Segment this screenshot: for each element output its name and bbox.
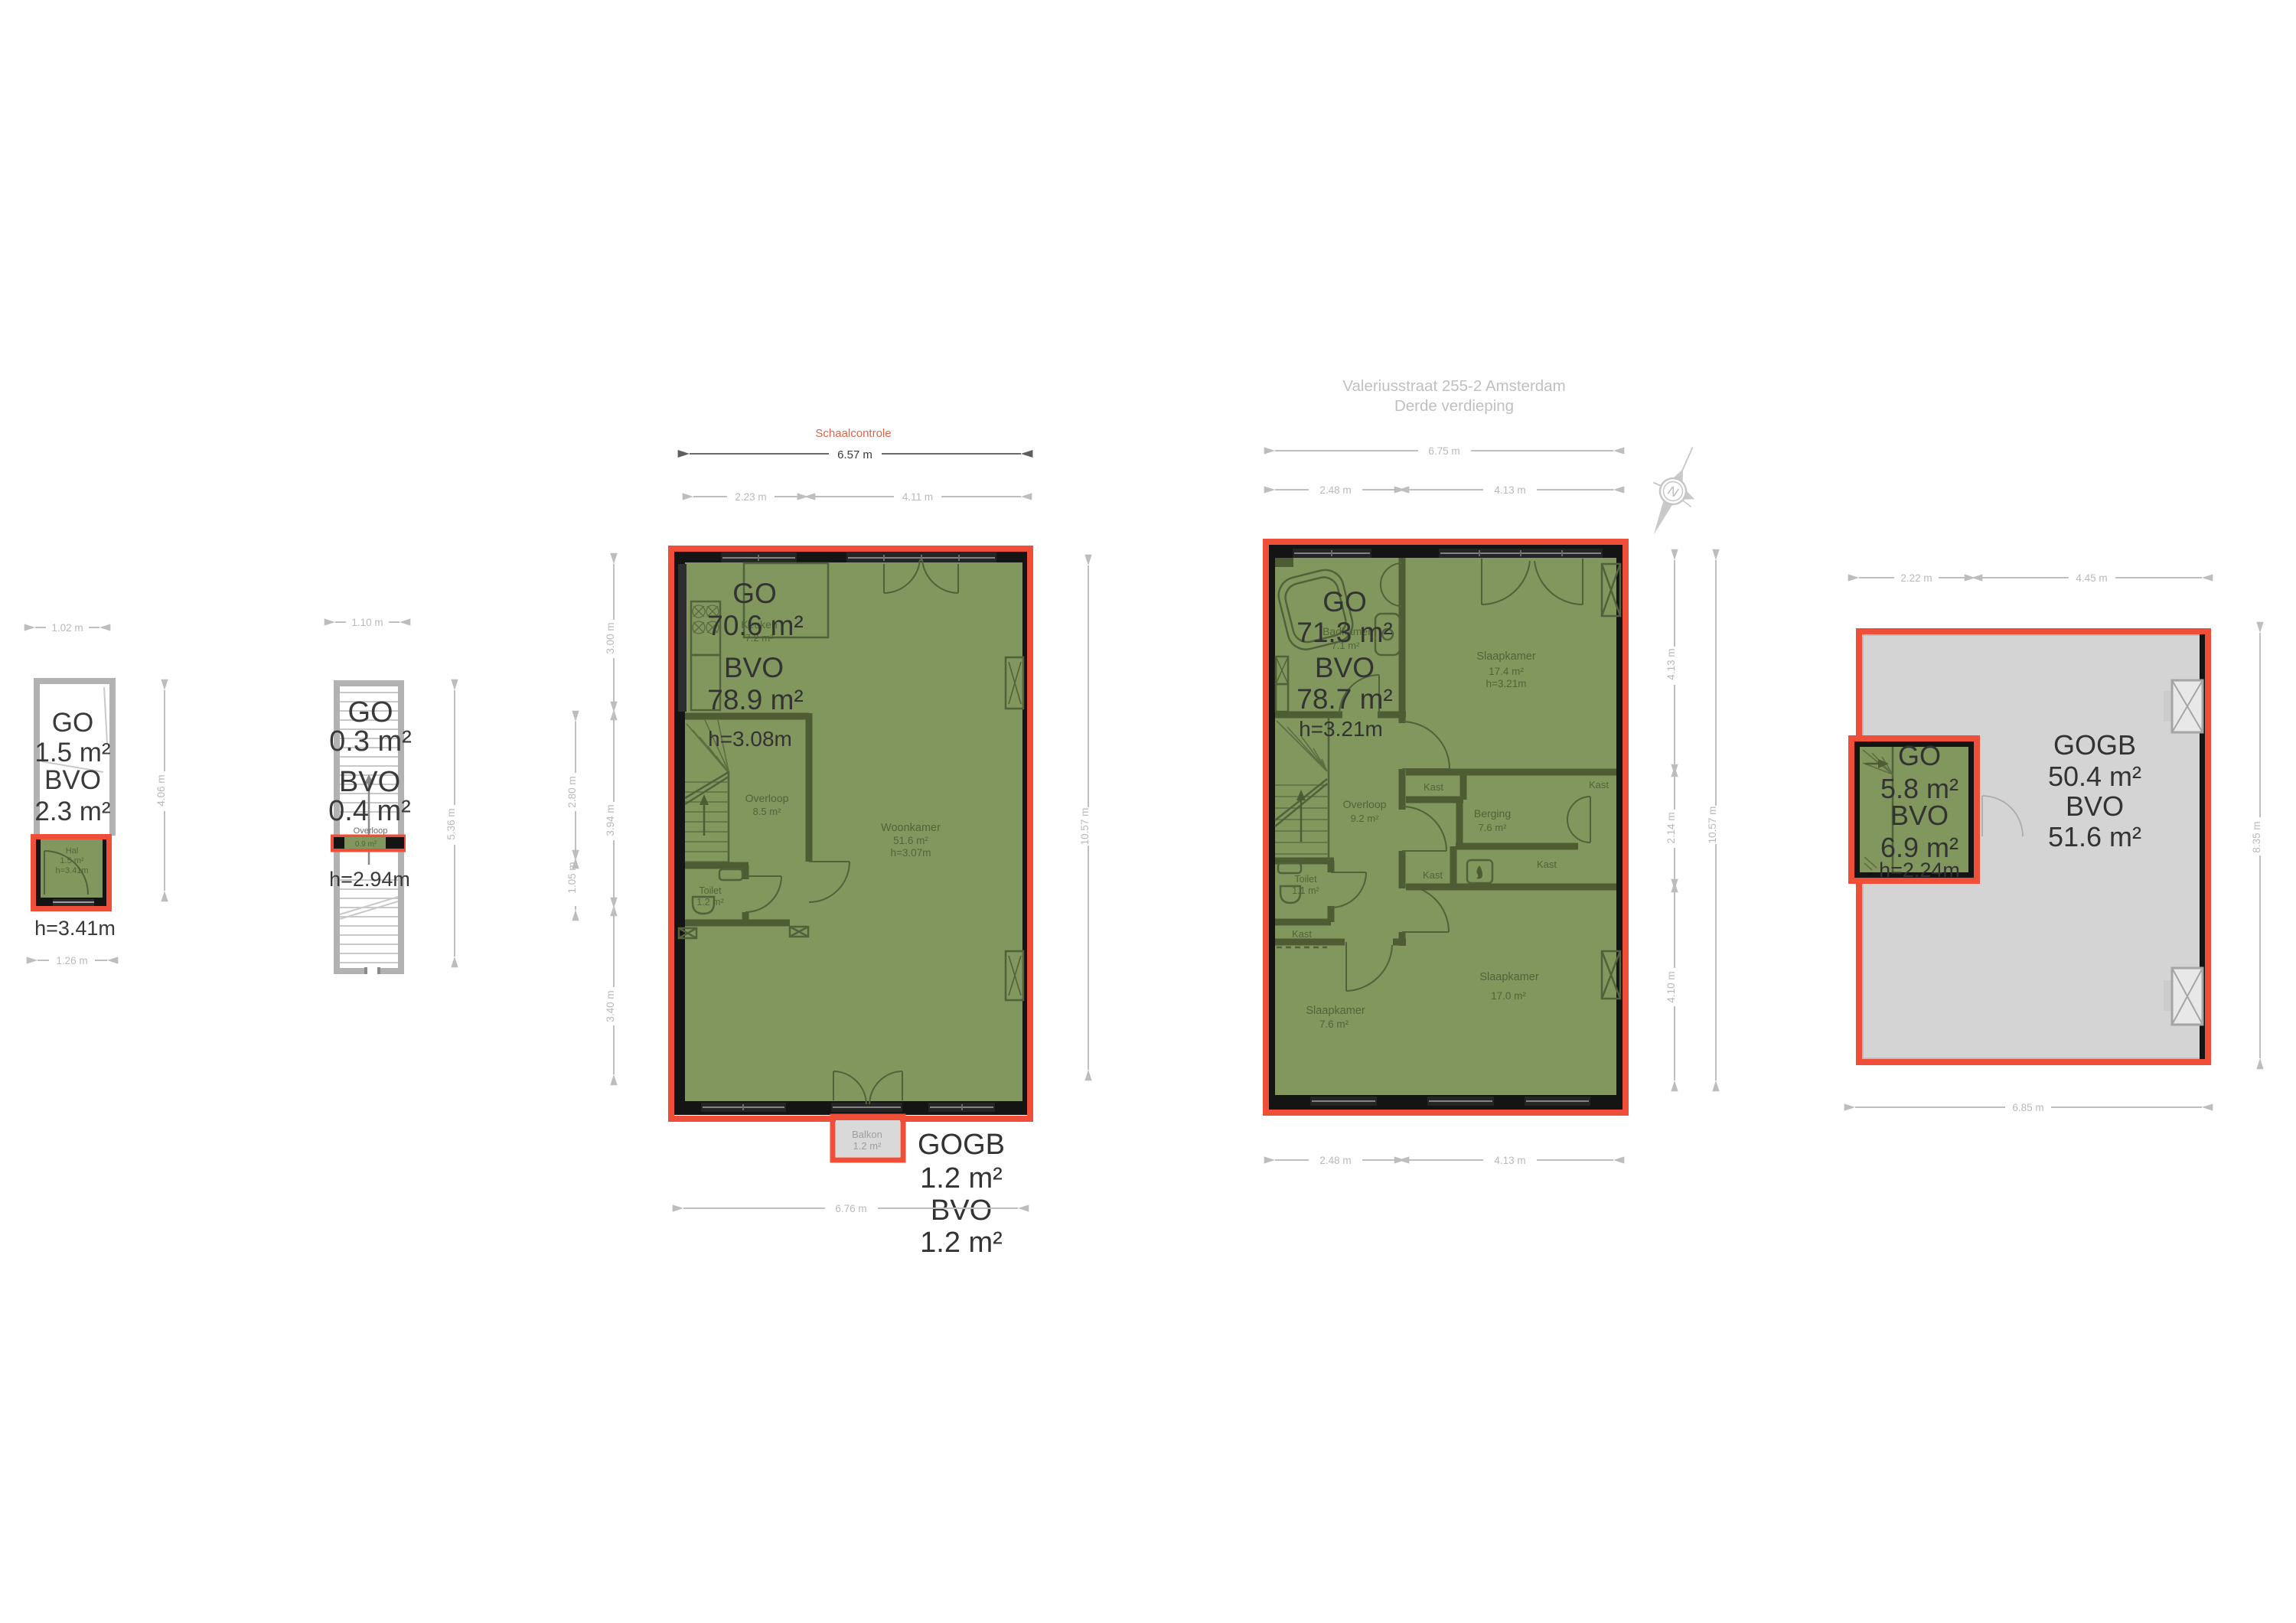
svg-text:10.57 m: 10.57 m (1079, 808, 1091, 846)
svg-text:Slaapkamer: Slaapkamer (1476, 650, 1536, 663)
svg-text:78.9 m²: 78.9 m² (707, 684, 803, 715)
svg-text:4.11 m: 4.11 m (902, 491, 933, 503)
svg-text:4.13 m: 4.13 m (1665, 648, 1677, 680)
svg-text:h=3.41m: h=3.41m (55, 866, 88, 875)
svg-text:h=3.07m: h=3.07m (891, 847, 931, 859)
svg-text:71.3 m²: 71.3 m² (1296, 617, 1392, 648)
svg-text:1.05 m: 1.05 m (566, 862, 578, 893)
svg-text:1.02 m: 1.02 m (51, 622, 83, 634)
svg-text:BVO: BVO (2066, 790, 2124, 822)
svg-text:1.5 m²: 1.5 m² (34, 738, 110, 768)
svg-text:8.5 m²: 8.5 m² (753, 806, 782, 817)
svg-text:Derde verdieping: Derde verdieping (1394, 397, 1514, 415)
svg-text:2.48 m: 2.48 m (1319, 1155, 1351, 1166)
svg-text:Kast: Kast (1589, 779, 1609, 790)
svg-text:BVO: BVO (724, 652, 784, 683)
svg-text:Kast: Kast (1292, 928, 1312, 940)
svg-text:BVO: BVO (931, 1194, 992, 1227)
svg-text:6.85 m: 6.85 m (2012, 1102, 2043, 1113)
svg-text:4.45 m: 4.45 m (2076, 572, 2107, 584)
svg-text:h=2.24m: h=2.24m (1879, 859, 1960, 882)
svg-text:Slaapkamer: Slaapkamer (1479, 971, 1539, 983)
svg-text:1.26 m: 1.26 m (56, 955, 87, 966)
svg-text:2.3 m²: 2.3 m² (34, 797, 110, 826)
svg-text:6.57 m: 6.57 m (837, 448, 872, 461)
svg-text:1.2 m²: 1.2 m² (920, 1227, 1003, 1259)
svg-text:Overloop: Overloop (354, 826, 388, 836)
svg-text:0.3 m²: 0.3 m² (329, 725, 412, 758)
svg-text:GO: GO (1898, 740, 1941, 771)
svg-text:3.00 m: 3.00 m (605, 622, 616, 653)
svg-text:GO: GO (1322, 586, 1367, 618)
svg-text:Hal: Hal (66, 846, 79, 855)
svg-text:BVO: BVO (1315, 652, 1375, 683)
svg-text:4.13 m: 4.13 m (1494, 484, 1525, 496)
svg-text:Valeriusstraat 255-2 Amsterdam: Valeriusstraat 255-2 Amsterdam (1342, 377, 1565, 395)
svg-text:Berging: Berging (1474, 807, 1511, 820)
svg-text:Woonkamer: Woonkamer (881, 822, 941, 834)
svg-text:2.22 m: 2.22 m (1900, 572, 1932, 584)
svg-text:Overloop: Overloop (745, 792, 789, 804)
svg-text:7.6 m²: 7.6 m² (1319, 1018, 1349, 1030)
svg-text:70.6 m²: 70.6 m² (707, 610, 803, 641)
svg-text:h=3.21m: h=3.21m (1299, 717, 1383, 741)
svg-text:Kast: Kast (1423, 869, 1443, 881)
svg-text:h=3.21m: h=3.21m (1486, 678, 1527, 689)
svg-text:2.14 m: 2.14 m (1665, 812, 1677, 843)
svg-text:Toilet: Toilet (699, 885, 722, 896)
svg-text:GOGB: GOGB (2053, 729, 2136, 761)
svg-text:h=2.94m: h=2.94m (329, 868, 410, 891)
svg-text:8.35 m: 8.35 m (2251, 821, 2262, 852)
svg-text:GO: GO (732, 578, 777, 609)
svg-text:1.1 m²: 1.1 m² (1292, 885, 1319, 896)
svg-text:10.57 m: 10.57 m (1707, 807, 1718, 844)
svg-text:1.2 m²: 1.2 m² (920, 1162, 1003, 1194)
svg-text:6.76 m: 6.76 m (835, 1203, 866, 1214)
svg-text:1.10 m: 1.10 m (351, 617, 383, 628)
svg-text:9.2 m²: 9.2 m² (1351, 813, 1380, 824)
svg-text:Kast: Kast (1537, 859, 1557, 870)
svg-text:78.7 m²: 78.7 m² (1296, 683, 1392, 715)
svg-text:2.23 m: 2.23 m (735, 491, 766, 503)
svg-text:2.80 m: 2.80 m (566, 776, 578, 807)
svg-text:BVO: BVO (44, 765, 101, 795)
svg-text:4.06 m: 4.06 m (155, 774, 167, 806)
svg-text:h=3.08m: h=3.08m (708, 727, 792, 751)
svg-text:4.10 m: 4.10 m (1665, 971, 1677, 1002)
svg-text:Overloop: Overloop (1343, 798, 1387, 810)
svg-text:Balkon: Balkon (852, 1129, 882, 1140)
svg-text:3.94 m: 3.94 m (605, 804, 616, 836)
svg-text:h=3.41m: h=3.41m (34, 917, 116, 940)
svg-text:6.75 m: 6.75 m (1428, 445, 1459, 457)
svg-text:GO: GO (347, 696, 393, 728)
svg-text:GOGB: GOGB (918, 1129, 1005, 1161)
svg-text:3.40 m: 3.40 m (605, 990, 616, 1022)
svg-text:Slaapkamer: Slaapkamer (1306, 1005, 1365, 1017)
svg-text:BVO: BVO (339, 766, 400, 798)
svg-text:GO: GO (52, 708, 93, 738)
svg-text:0.9 m²: 0.9 m² (355, 840, 377, 849)
svg-text:0.4 m²: 0.4 m² (328, 795, 411, 827)
svg-text:17.4 m²: 17.4 m² (1489, 666, 1524, 677)
svg-text:51.6 m²: 51.6 m² (2048, 821, 2141, 852)
svg-text:1.2 m²: 1.2 m² (853, 1140, 882, 1152)
svg-text:50.4 m²: 50.4 m² (2048, 761, 2141, 792)
svg-text:1.5 m²: 1.5 m² (60, 856, 84, 865)
svg-text:Kast: Kast (1424, 781, 1443, 793)
svg-text:7.6 m²: 7.6 m² (1479, 822, 1508, 833)
svg-text:Toilet: Toilet (1294, 874, 1317, 885)
svg-text:51.6 m²: 51.6 m² (893, 835, 928, 846)
svg-text:2.48 m: 2.48 m (1319, 484, 1351, 496)
svg-text:4.13 m: 4.13 m (1494, 1155, 1525, 1166)
svg-text:17.0 m²: 17.0 m² (1491, 990, 1526, 1002)
svg-text:Schaalcontrole: Schaalcontrole (815, 427, 891, 440)
svg-text:1.2 m²: 1.2 m² (696, 897, 723, 908)
svg-text:5.36 m: 5.36 m (445, 808, 457, 839)
svg-text:BVO: BVO (1890, 800, 1949, 831)
